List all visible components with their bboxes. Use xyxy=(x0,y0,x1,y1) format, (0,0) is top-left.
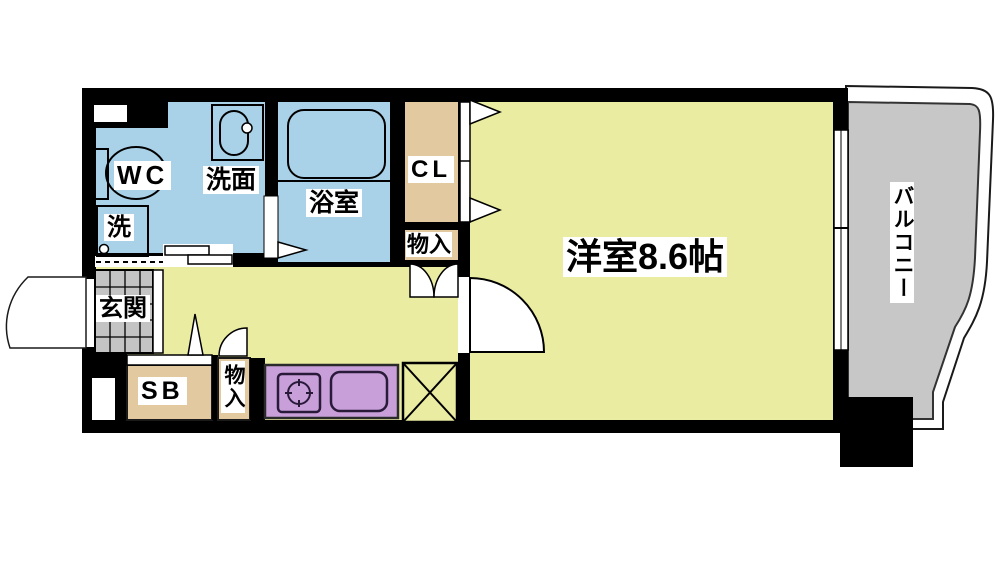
main-room-label: 洋室8.6帖 xyxy=(563,237,727,277)
washroom-label: 洗面 xyxy=(203,166,259,194)
front-door-fan xyxy=(6,277,86,348)
bath-doorway-gap xyxy=(264,196,278,258)
entrance-step-edge xyxy=(153,270,163,353)
shoe-box-counter-lip xyxy=(127,355,212,365)
closet-door-track xyxy=(460,102,470,222)
storage-upper-label: 物入 xyxy=(406,232,452,257)
bathroom-label: 浴室 xyxy=(306,189,362,217)
balcony-label: バルコニー xyxy=(890,182,914,303)
mainroom-doorway-gap xyxy=(458,277,470,353)
storage-lower-label: 物入 xyxy=(221,361,245,413)
vanity-faucet-icon xyxy=(242,123,252,133)
entrance-label: 玄関 xyxy=(96,295,150,322)
wall-storage-kitchen xyxy=(250,358,265,420)
wall-notch-bottom-left xyxy=(92,378,115,420)
corner-pillar xyxy=(840,397,913,467)
wall-notch-top-left xyxy=(94,105,127,122)
sliding-door-panel-2 xyxy=(188,255,232,264)
closet-label: CL xyxy=(408,156,454,183)
floorplan-canvas: WC 洗面 浴室 洗 CL 物入 玄関 SB 物入 洋室8.6帖 バルコニー xyxy=(0,0,1000,562)
washer-knob-icon xyxy=(100,245,109,254)
sliding-door-panel-1 xyxy=(165,246,209,255)
balcony-deck xyxy=(848,102,980,419)
washer-label: 洗 xyxy=(104,214,134,241)
wc-label: WC xyxy=(114,161,171,190)
shoe-box-label: SB xyxy=(138,377,187,405)
floorplan-drawing xyxy=(0,0,1000,562)
